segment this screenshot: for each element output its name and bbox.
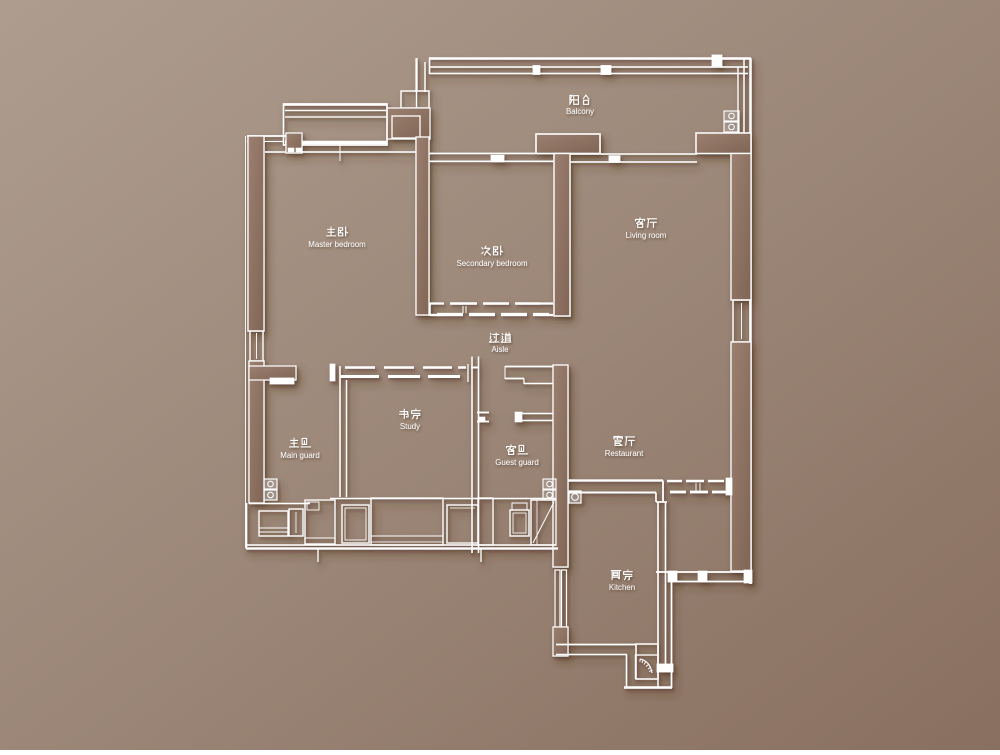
svg-text:Aisle: Aisle — [491, 345, 509, 354]
svg-text:Secondary bedroom: Secondary bedroom — [456, 259, 527, 268]
svg-text:Master bedroom: Master bedroom — [308, 240, 366, 249]
svg-text:Balcony: Balcony — [566, 107, 594, 116]
svg-text:Study: Study — [400, 422, 420, 431]
svg-text:Restaurant: Restaurant — [605, 449, 644, 458]
svg-text:Kitchen: Kitchen — [609, 583, 635, 592]
svg-text:Living room: Living room — [626, 231, 667, 240]
svg-text:Guest guard: Guest guard — [495, 458, 538, 467]
svg-text:Main guard: Main guard — [280, 451, 319, 460]
